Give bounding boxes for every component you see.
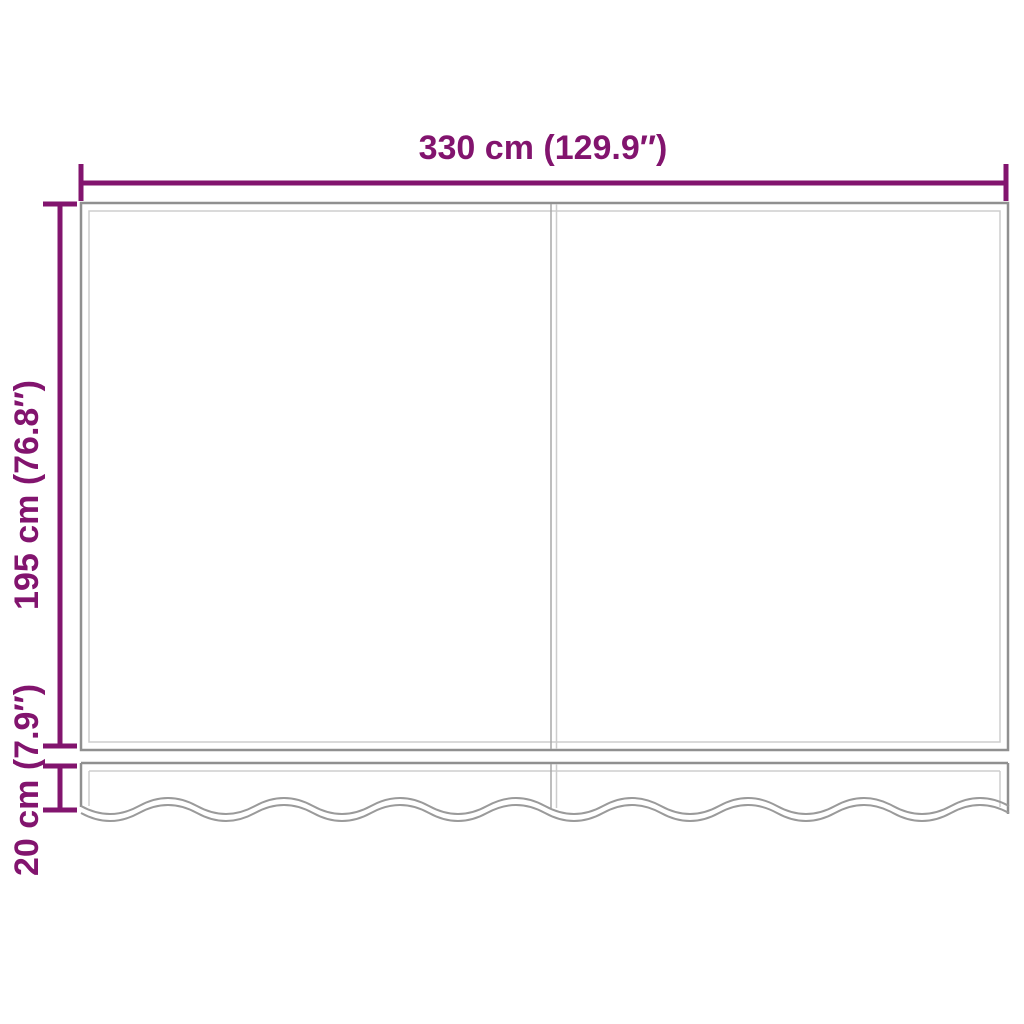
height-dimension-label: 195 cm (76.8″) <box>8 380 46 610</box>
height-dimension <box>43 204 77 746</box>
width-dimension-label: 330 cm (129.9″) <box>419 129 668 167</box>
valance-height-dimension-label: 20 cm (7.9″) <box>8 684 46 876</box>
valance-strip <box>81 763 1009 821</box>
valance-height-dimension <box>43 766 77 810</box>
awning-dimension-diagram: 330 cm (129.9″) 195 cm (76.8″) 20 cm (7.… <box>0 0 1024 1024</box>
fabric-inner-seam-rect <box>89 211 1000 742</box>
fabric-panel <box>81 203 1008 750</box>
width-dimension <box>81 164 1006 201</box>
fabric-outer-rect <box>81 203 1008 750</box>
diagram-canvas: 330 cm (129.9″) 195 cm (76.8″) 20 cm (7.… <box>0 0 1024 1024</box>
